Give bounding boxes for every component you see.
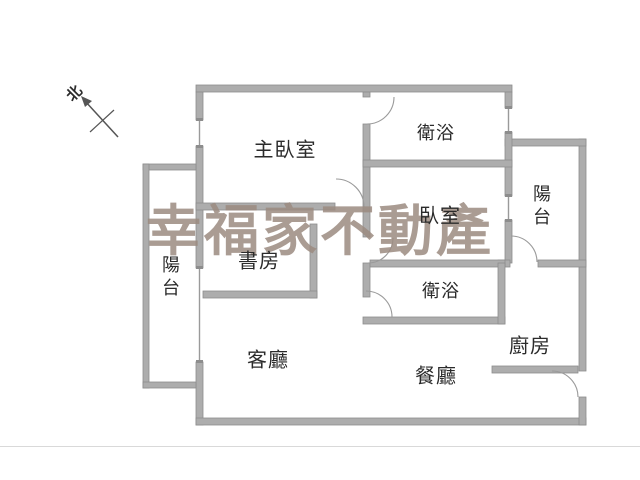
room-label-dining-room: 餐廳 <box>415 360 457 389</box>
footer-divider <box>0 446 640 447</box>
door-arc-kitchen <box>552 371 578 397</box>
floorplan-page: 北 幸福家不動產 主臥室 衛浴 臥室 陽台 陽台 書房 客廳 餐廳 廚房 衛浴 <box>0 0 640 480</box>
room-label-study: 書房 <box>238 245 280 274</box>
door-arc-bathroom-top <box>367 97 394 124</box>
room-label-bathroom-bottom: 衛浴 <box>422 277 460 303</box>
room-label-balcony-left: 陽台 <box>157 255 183 301</box>
north-arrow: 北 <box>63 82 118 137</box>
room-label-bathroom-top: 衛浴 <box>417 119 455 145</box>
room-label-balcony-right: 陽台 <box>528 184 554 230</box>
room-label-master-bedroom: 主臥室 <box>254 134 317 163</box>
north-label: 北 <box>63 82 86 105</box>
door-arc-balcony-right <box>511 236 537 262</box>
room-label-bedroom: 臥室 <box>419 200 461 229</box>
room-label-living-room: 客廳 <box>247 344 289 373</box>
room-label-kitchen: 廚房 <box>509 330 551 359</box>
